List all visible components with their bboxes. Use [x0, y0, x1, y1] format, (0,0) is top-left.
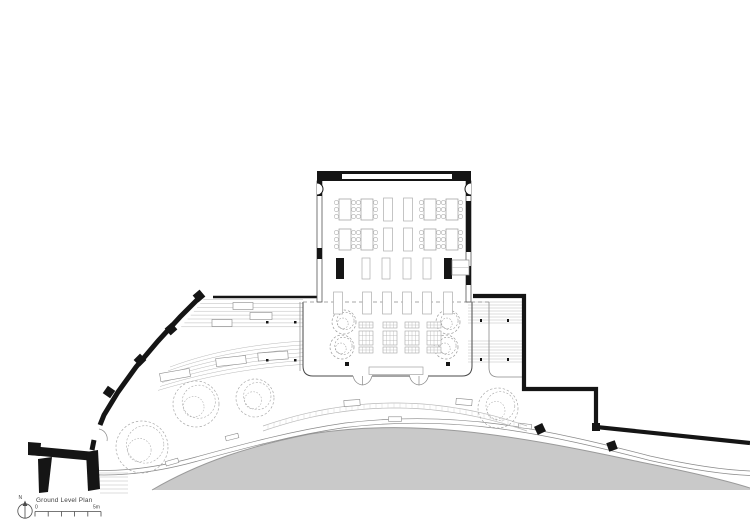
chair	[352, 230, 356, 234]
wall-junction	[592, 423, 600, 431]
chair	[441, 207, 445, 211]
chair	[437, 244, 441, 248]
chair	[441, 200, 445, 204]
table	[334, 292, 343, 314]
path-marker	[225, 433, 239, 441]
tree	[173, 381, 219, 427]
gate-door-swing	[353, 376, 372, 385]
cafe-table	[359, 322, 373, 328]
table-with-chairs	[441, 229, 462, 250]
existing-wall	[28, 442, 41, 456]
chair	[419, 207, 423, 211]
chair	[334, 244, 338, 248]
cafe-table	[359, 347, 373, 353]
tree-canopy-inner	[439, 337, 456, 354]
chair	[437, 214, 441, 218]
tree-canopy-core	[337, 318, 348, 329]
chair	[356, 237, 360, 241]
walkway-edge	[489, 302, 523, 377]
ramp-band	[263, 398, 527, 431]
cafe-table	[405, 331, 419, 345]
plaza-bollard	[345, 362, 349, 366]
terrace-bench	[212, 320, 232, 327]
table	[362, 258, 370, 279]
chair	[459, 214, 463, 218]
paving-fill	[152, 428, 750, 490]
plaza-bollard	[446, 362, 450, 366]
table	[403, 258, 411, 279]
table	[383, 292, 392, 314]
cafe-table	[383, 322, 397, 328]
chair	[352, 207, 356, 211]
title-block: N Ground Level Plan 0 5m	[18, 495, 101, 518]
north-label: N	[19, 495, 23, 501]
cafe-table	[359, 331, 373, 345]
path-marker	[165, 458, 179, 466]
gate-door-swing	[410, 376, 429, 385]
tree-canopy-core	[335, 343, 346, 354]
table	[423, 258, 431, 279]
ramp-marker	[456, 398, 472, 405]
tree-canopy-inner	[126, 426, 163, 463]
step-dot	[266, 359, 269, 362]
tree-canopy-core	[128, 438, 151, 461]
chair	[374, 207, 378, 211]
chair	[334, 230, 338, 234]
wall-segment	[317, 248, 322, 259]
building	[317, 171, 471, 314]
compass-arrowhead	[23, 501, 28, 507]
existing-wall	[38, 457, 52, 493]
existing-wall	[86, 450, 100, 491]
table	[404, 198, 413, 221]
tree-canopy	[236, 379, 274, 417]
tree-canopy	[173, 381, 219, 427]
table	[446, 229, 458, 250]
table	[446, 199, 458, 220]
chair	[437, 200, 441, 204]
tree-canopy-core	[441, 318, 452, 329]
curved-boundary-wall	[100, 295, 202, 425]
table-with-chairs	[356, 199, 377, 220]
terrace-steps-left	[158, 300, 303, 391]
chair	[437, 237, 441, 241]
tree-canopy	[330, 335, 354, 359]
cafe-table	[427, 331, 441, 345]
chair	[459, 230, 463, 234]
tree-canopy-core	[245, 392, 262, 409]
chair	[334, 207, 338, 211]
wall-stub	[92, 440, 94, 450]
cafe-table	[383, 347, 397, 353]
cafe-table	[427, 347, 441, 353]
step-dot	[480, 358, 482, 361]
tree	[236, 379, 274, 417]
door-swing-arc	[99, 429, 107, 441]
column	[444, 258, 452, 279]
scale-bar-ticks	[35, 512, 101, 517]
column	[336, 258, 344, 279]
chair	[356, 244, 360, 248]
step-dot	[507, 319, 509, 322]
table	[444, 292, 453, 314]
tree-canopy-inner	[182, 385, 215, 418]
north-arrow-icon: N	[18, 495, 32, 518]
table	[404, 228, 413, 251]
chair	[356, 214, 360, 218]
table-with-chairs	[334, 229, 355, 250]
table	[339, 229, 351, 250]
table	[403, 292, 412, 314]
chair	[419, 237, 423, 241]
table-with-chairs	[356, 229, 377, 250]
bollard	[534, 423, 546, 435]
chair	[356, 200, 360, 204]
table	[424, 199, 436, 220]
glazed-wall-left	[317, 181, 322, 302]
chair	[419, 214, 423, 218]
chair	[419, 200, 423, 204]
plan-title: Ground Level Plan	[36, 497, 93, 504]
tree-canopy-inner	[486, 392, 515, 421]
plan-canvas: N Ground Level Plan 0 5m	[0, 0, 750, 530]
table	[382, 258, 390, 279]
terrace-steps-right	[468, 302, 523, 377]
service-desk	[452, 260, 469, 275]
chair	[334, 200, 338, 204]
chair	[374, 237, 378, 241]
path-marker	[389, 417, 402, 422]
chair	[459, 237, 463, 241]
chair	[356, 230, 360, 234]
cafe-table	[427, 322, 441, 328]
table	[423, 292, 432, 314]
table	[361, 229, 373, 250]
table	[363, 292, 372, 314]
table	[424, 229, 436, 250]
chair	[374, 230, 378, 234]
chair	[441, 237, 445, 241]
stepped-boundary-wall	[473, 296, 750, 443]
chair	[459, 244, 463, 248]
chair	[374, 244, 378, 248]
step-dot	[507, 358, 509, 361]
table-with-chairs	[334, 199, 355, 220]
chair	[352, 244, 356, 248]
chair	[441, 230, 445, 234]
tree-canopy-inner	[244, 382, 271, 409]
table-with-chairs	[441, 199, 462, 220]
terrace-bench	[233, 303, 253, 310]
tree-canopy-core	[183, 396, 204, 417]
terrace-bench	[258, 351, 288, 361]
plaza	[303, 302, 490, 385]
table-with-chairs	[419, 199, 440, 220]
chair	[441, 244, 445, 248]
cafe-table	[383, 331, 397, 345]
paving-area	[152, 428, 750, 490]
chair	[334, 214, 338, 218]
top-wall-opening	[342, 174, 452, 179]
step-dot	[294, 359, 297, 362]
step-dot	[266, 321, 269, 324]
ramp-marker	[344, 399, 360, 406]
chair	[437, 230, 441, 234]
scale-bar: 0 5m	[35, 505, 101, 517]
chair	[459, 207, 463, 211]
chair	[459, 200, 463, 204]
cafe-table	[405, 347, 419, 353]
chair	[352, 200, 356, 204]
cafe-table	[405, 322, 419, 328]
chair	[356, 207, 360, 211]
step-dot	[480, 319, 482, 322]
tree-canopy-inner	[335, 337, 352, 354]
wall-segment	[466, 201, 471, 252]
site-plan-drawing: N Ground Level Plan 0 5m	[0, 0, 750, 530]
chair	[334, 237, 338, 241]
chair	[374, 214, 378, 218]
tree-canopy-inner	[441, 312, 458, 329]
scale-end-label: 5m	[93, 505, 100, 511]
chair	[352, 214, 356, 218]
scale-start-label: 0	[35, 505, 38, 511]
tree	[330, 335, 354, 359]
plaza-bench	[369, 367, 423, 375]
terrace-bench	[250, 313, 272, 320]
table	[384, 228, 393, 251]
chair	[352, 237, 356, 241]
table	[339, 199, 351, 220]
terrace-bench	[160, 368, 191, 381]
tree-canopy-inner	[337, 312, 354, 329]
chair	[419, 244, 423, 248]
chair	[437, 207, 441, 211]
plan-layers	[28, 171, 750, 493]
chair	[419, 230, 423, 234]
table	[361, 199, 373, 220]
step-dot	[294, 321, 297, 324]
table	[384, 198, 393, 221]
chair	[441, 214, 445, 218]
chair	[374, 200, 378, 204]
terrace-bench	[216, 355, 247, 366]
table-with-chairs	[419, 229, 440, 250]
